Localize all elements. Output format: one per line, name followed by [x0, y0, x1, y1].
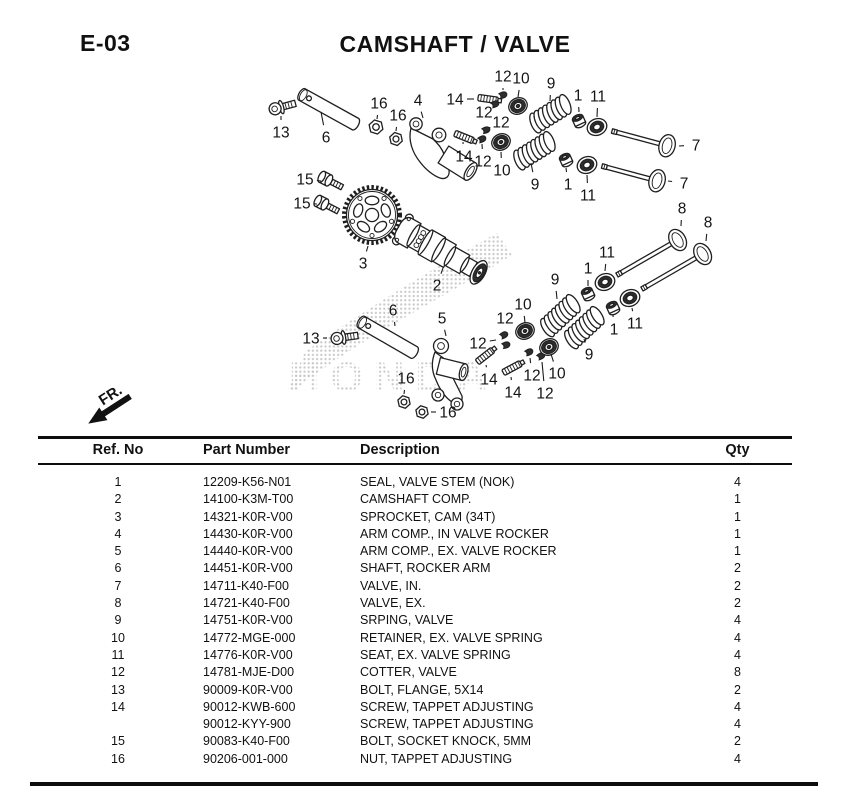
table-body: 112209-K56-N01SEAL, VALVE STEM (NOK)4214…	[38, 465, 792, 768]
callout-4: 4	[414, 93, 423, 110]
leader-line	[551, 354, 553, 362]
table-cell: 14781-MJE-D00	[198, 664, 353, 681]
spring-retainer-part	[489, 131, 513, 154]
leader-line	[396, 127, 397, 131]
table-cell: 6	[38, 560, 198, 577]
table-row: 914751-K0R-V00SRPING, VALVE4	[38, 612, 792, 629]
table-row: 1590083-K40-F00BOLT, SOCKET KNOCK, 5MM2	[38, 733, 792, 750]
valve-stem-seal-part	[580, 286, 596, 303]
leader-line	[421, 112, 423, 118]
table-cell: 90206-001-000	[198, 751, 353, 768]
callout-1: 1	[564, 177, 573, 194]
table-row: 90012-KYY-900SCREW, TAPPET ADJUSTING4	[38, 716, 792, 733]
callout-16: 16	[370, 96, 387, 113]
callout-8: 8	[704, 215, 713, 232]
cam-sprocket-part	[345, 188, 400, 243]
table-cell: 4	[683, 716, 792, 733]
table-cell: BOLT, SOCKET KNOCK, 5MM	[353, 733, 683, 750]
valve-cotter-part	[502, 341, 511, 349]
callout-12: 12	[469, 336, 486, 353]
table-row: 112209-K56-N01SEAL, VALVE STEM (NOK)4	[38, 474, 792, 491]
fr-arrow: FR.	[77, 380, 134, 430]
table-cell: 90012-KYY-900	[198, 716, 353, 733]
table-cell: SRPING, VALVE	[353, 612, 683, 629]
table-row: 314321-K0R-V00SPROCKET, CAM (34T)1	[38, 509, 792, 526]
table-cell: RETAINER, EX. VALVE SPRING	[353, 630, 683, 647]
valve-stem-seal-part	[571, 113, 587, 130]
callout-11: 11	[580, 188, 596, 205]
callout-5: 5	[438, 311, 447, 328]
table-cell: 7	[38, 578, 198, 595]
callout-16: 16	[397, 371, 414, 388]
flange-bolt-part	[268, 97, 298, 117]
col-header-part: Part Number	[198, 443, 353, 458]
col-header-desc: Description	[353, 443, 683, 458]
table-row: 214100-K3M-T00CAMSHAFT COMP.1	[38, 491, 792, 508]
spring-retainer-part	[513, 320, 537, 343]
table-row: 1690206-001-000NUT, TAPPET ADJUSTING4	[38, 751, 792, 768]
table-cell: ARM COMP., EX. VALVE ROCKER	[353, 543, 683, 560]
leader-line	[542, 362, 544, 381]
table-cell: 8	[683, 664, 792, 681]
table-cell: 2	[683, 578, 792, 595]
leader-line	[377, 115, 378, 119]
callout-6: 6	[322, 130, 331, 147]
table-cell: 4	[38, 526, 198, 543]
leader-line	[486, 365, 487, 367]
table-cell: 1	[683, 491, 792, 508]
callout-7: 7	[680, 176, 689, 193]
callout-12: 12	[475, 105, 492, 122]
callout-2: 2	[433, 278, 442, 295]
leader-line	[445, 330, 446, 336]
table-row: 1114776-K0R-V00SEAT, EX. VALVE SPRING4	[38, 647, 792, 664]
socket-bolt-part	[312, 194, 341, 216]
table-cell: SPROCKET, CAM (34T)	[353, 509, 683, 526]
table-cell: 4	[683, 647, 792, 664]
table-row: 1014772-MGE-000RETAINER, EX. VALVE SPRIN…	[38, 630, 792, 647]
table-cell: 2	[683, 560, 792, 577]
callout-13: 13	[272, 125, 289, 142]
table-cell: 14751-K0R-V00	[198, 612, 353, 629]
callout-11: 11	[590, 89, 606, 106]
leader-line	[317, 181, 321, 182]
valve-ex-part	[611, 226, 690, 285]
callout-14: 14	[446, 92, 464, 109]
table-cell: 1	[683, 509, 792, 526]
leader-line	[489, 127, 490, 128]
callout-16: 16	[389, 108, 406, 125]
callout-9: 9	[585, 347, 594, 364]
table-row: 1214781-MJE-D00COTTER, VALVE8	[38, 664, 792, 681]
table-row: 714711-K40-F00VALVE, IN.2	[38, 578, 792, 595]
table-cell: 16	[38, 751, 198, 768]
table-cell: 15	[38, 733, 198, 750]
table-cell: 2	[683, 595, 792, 612]
table-cell: 90009-K0R-V00	[198, 682, 353, 699]
leader-line	[404, 390, 405, 394]
leader-line	[518, 90, 519, 97]
table-cell: 2	[38, 491, 198, 508]
callout-1: 1	[574, 88, 583, 105]
table-cell	[38, 716, 198, 733]
callout-15: 15	[296, 172, 313, 189]
valve-stem-seal-part	[558, 152, 574, 169]
callout-12: 12	[496, 311, 513, 328]
valve-cotter-part	[478, 135, 487, 143]
table-cell: 4	[683, 474, 792, 491]
table-cell: 1	[683, 526, 792, 543]
callout-9: 9	[551, 272, 560, 289]
callout-14: 14	[480, 372, 498, 389]
table-cell: 3	[38, 509, 198, 526]
table-cell: 12209-K56-N01	[198, 474, 353, 491]
table-cell: CAMSHAFT COMP.	[353, 491, 683, 508]
table-cell: 13	[38, 682, 198, 699]
col-header-qty: Qty	[683, 443, 792, 458]
table-cell: 14776-K0R-V00	[198, 647, 353, 664]
valve-stem-seal-part	[605, 300, 621, 317]
table-cell: 90083-K40-F00	[198, 733, 353, 750]
callout-12: 12	[492, 115, 509, 132]
callout-10: 10	[493, 163, 511, 180]
hex-nut-part	[367, 119, 385, 135]
table-row: 1390009-K0R-V00BOLT, FLANGE, 5X142	[38, 682, 792, 699]
table-cell: 14321-K0R-V00	[198, 509, 353, 526]
bottom-rule	[30, 782, 818, 786]
spring-seat-part	[593, 271, 618, 294]
hex-nut-part	[414, 405, 430, 419]
spring-seat-part	[618, 287, 643, 310]
table-cell: VALVE, IN.	[353, 578, 683, 595]
callout-9: 9	[531, 177, 540, 194]
table-cell: 5	[38, 543, 198, 560]
exploded-diagram: HONDA	[0, 0, 845, 435]
leader-line	[632, 308, 633, 311]
callout-12: 12	[536, 386, 553, 403]
valve-cotter-part	[500, 330, 509, 339]
table-cell: 10	[38, 630, 198, 647]
rocker-shaft-part	[296, 87, 361, 131]
catalog-page: E-03 CAMSHAFT / VALVE HONDA	[0, 0, 845, 793]
table-cell: 4	[683, 699, 792, 716]
callout-14: 14	[455, 149, 473, 166]
table-cell: SCREW, TAPPET ADJUSTING	[353, 716, 683, 733]
table-cell: 4	[683, 630, 792, 647]
callout-10: 10	[512, 71, 530, 88]
valve-in-part	[609, 120, 678, 159]
table-cell: ARM COMP., IN VALVE ROCKER	[353, 526, 683, 543]
col-header-ref: Ref. No	[38, 443, 198, 458]
leader-line	[492, 102, 493, 103]
table-cell: 4	[683, 751, 792, 768]
leader-line	[668, 181, 672, 182]
callout-1: 1	[584, 261, 593, 278]
table-cell: 12	[38, 664, 198, 681]
callout-6: 6	[389, 303, 398, 320]
table-cell: 14430-K0R-V00	[198, 526, 353, 543]
callout-10: 10	[548, 366, 566, 383]
table-header-row: Ref. No Part Number Description Qty	[38, 439, 792, 465]
table-row: 614451-K0R-V00SHAFT, ROCKER ARM2	[38, 560, 792, 577]
callout-11: 11	[627, 316, 643, 333]
table-cell: 1	[38, 474, 198, 491]
table-cell: COTTER, VALVE	[353, 664, 683, 681]
valve-in-part	[599, 155, 668, 194]
table-cell: SEAL, VALVE STEM (NOK)	[353, 474, 683, 491]
table-cell: 4	[683, 612, 792, 629]
callout-14: 14	[504, 385, 522, 402]
table-cell: 14451-K0R-V00	[198, 560, 353, 577]
table-row: 1490012-KWB-600SCREW, TAPPET ADJUSTING4	[38, 699, 792, 716]
leader-line	[605, 264, 606, 271]
table-cell: SHAFT, ROCKER ARM	[353, 560, 683, 577]
table-cell: 14772-MGE-000	[198, 630, 353, 647]
table-cell: 1	[683, 543, 792, 560]
leader-line	[556, 291, 557, 299]
table-cell: 14440-K0R-V00	[198, 543, 353, 560]
callout-15: 15	[293, 196, 310, 213]
callout-3: 3	[359, 256, 368, 273]
table-cell: VALVE, EX.	[353, 595, 683, 612]
parts-table: Ref. No Part Number Description Qty 1122…	[38, 436, 792, 768]
leader-line	[366, 246, 368, 252]
table-cell: 9	[38, 612, 198, 629]
callout-13: 13	[302, 331, 319, 348]
leader-line	[530, 358, 531, 363]
table-cell: 14721-K40-F00	[198, 595, 353, 612]
hex-nut-part	[388, 132, 404, 147]
callout-11: 11	[599, 245, 615, 262]
spring-seat-part	[585, 116, 610, 139]
table-cell: 8	[38, 595, 198, 612]
table-cell: NUT, TAPPET ADJUSTING	[353, 751, 683, 768]
table-cell: BOLT, FLANGE, 5X14	[353, 682, 683, 699]
table-cell: 2	[683, 733, 792, 750]
leader-line	[566, 168, 567, 172]
valve-cotter-part	[525, 348, 534, 356]
table-cell: 2	[683, 682, 792, 699]
valve-spring-part	[508, 129, 560, 173]
tappet-screw-part	[502, 359, 526, 376]
valve-cotter-part	[482, 126, 491, 134]
table-row: 814721-K40-F00VALVE, EX.2	[38, 595, 792, 612]
callout-12: 12	[494, 69, 511, 86]
table-row: 414430-K0R-V00ARM COMP., IN VALVE ROCKER…	[38, 526, 792, 543]
leader-line	[706, 234, 707, 241]
table-cell: 14711-K40-F00	[198, 578, 353, 595]
leader-line	[524, 316, 525, 323]
callout-8: 8	[678, 201, 687, 218]
callout-12: 12	[523, 368, 540, 385]
callout-10: 10	[514, 297, 532, 314]
table-cell: SCREW, TAPPET ADJUSTING	[353, 699, 683, 716]
callout-1: 1	[610, 322, 619, 339]
table-cell: 14	[38, 699, 198, 716]
callout-12: 12	[474, 154, 491, 171]
table-cell: SEAT, EX. VALVE SPRING	[353, 647, 683, 664]
table-cell: 90012-KWB-600	[198, 699, 353, 716]
spring-seat-part	[575, 154, 600, 177]
table-cell: 14100-K3M-T00	[198, 491, 353, 508]
leader-line	[395, 322, 396, 326]
callout-7: 7	[692, 138, 701, 155]
table-cell: 11	[38, 647, 198, 664]
valve-cotter-part	[499, 91, 508, 99]
callout-16: 16	[439, 405, 456, 422]
callout-9: 9	[547, 76, 556, 93]
table-row: 514440-K0R-V00ARM COMP., EX. VALVE ROCKE…	[38, 543, 792, 560]
leader-line	[490, 340, 496, 341]
tappet-screw-part	[454, 130, 478, 145]
